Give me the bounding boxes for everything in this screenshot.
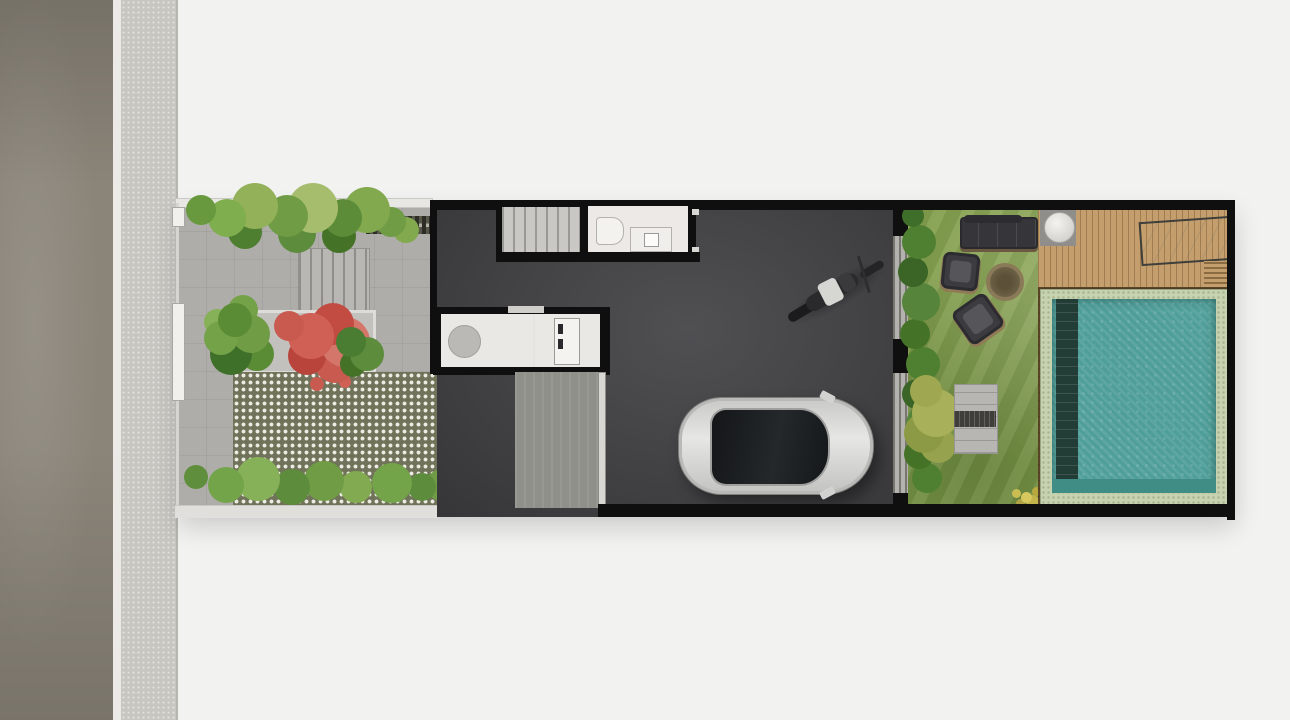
toilet-icon bbox=[596, 217, 624, 245]
staircase bbox=[502, 207, 580, 253]
gate-post bbox=[172, 207, 185, 227]
lounge-chair bbox=[940, 251, 981, 292]
round-stool-icon bbox=[448, 325, 481, 358]
wall-top-backyard bbox=[893, 200, 1235, 210]
car-roof-glass bbox=[710, 408, 830, 486]
chair-seat bbox=[961, 302, 994, 335]
road bbox=[0, 0, 113, 720]
sidewalk bbox=[121, 0, 178, 720]
wall-right bbox=[1227, 200, 1235, 520]
shrub-icon bbox=[336, 327, 366, 357]
door-mark bbox=[692, 209, 699, 215]
sink-basin-icon bbox=[644, 233, 659, 247]
site-plan-canvas bbox=[0, 0, 1290, 720]
palm-plant-icon bbox=[218, 303, 252, 337]
red-flowering-tree-icon bbox=[274, 311, 304, 341]
bush-icon bbox=[910, 375, 942, 407]
fire-pit-icon bbox=[986, 263, 1024, 301]
door-wall-segment bbox=[893, 339, 908, 373]
floor-plan bbox=[178, 203, 1235, 517]
pool-ladder-mat bbox=[1204, 261, 1228, 289]
entry-steps bbox=[298, 248, 370, 318]
marble-daybed bbox=[1139, 216, 1234, 266]
sink-slot bbox=[558, 324, 563, 334]
round-side-table-icon bbox=[1044, 212, 1075, 243]
fern-border-icon bbox=[184, 465, 208, 489]
wall-bottom bbox=[598, 504, 1235, 517]
curb bbox=[113, 0, 121, 720]
drainage-grate bbox=[366, 216, 432, 234]
pool-steps bbox=[1056, 299, 1078, 493]
car-top-view bbox=[678, 397, 872, 493]
garden-steps-riser bbox=[954, 411, 996, 427]
front-fence-bottom bbox=[175, 505, 437, 518]
kitchen-door-gap bbox=[508, 306, 544, 313]
pool-shallow-band bbox=[1052, 479, 1216, 493]
driveway bbox=[515, 372, 600, 508]
entry-gate bbox=[172, 303, 185, 401]
flower-cluster-icon bbox=[1012, 489, 1021, 498]
carport-screen bbox=[598, 372, 606, 507]
sink-slot bbox=[558, 339, 563, 349]
tree-canopy-row-icon bbox=[186, 195, 216, 225]
wall-under-stair bbox=[496, 252, 700, 262]
sofa-backrest bbox=[964, 215, 1022, 223]
chair-seat bbox=[949, 260, 972, 283]
